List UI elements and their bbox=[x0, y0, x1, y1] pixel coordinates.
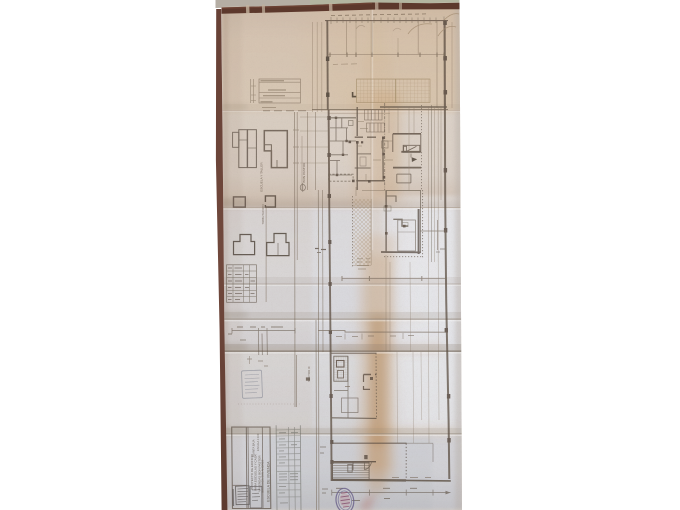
svg-text:BARRIADA SAN ANDRES: BARRIADA SAN ANDRES bbox=[261, 460, 265, 493]
svg-text:ESCUELA DE VIVIENDA: ESCUELA DE VIVIENDA bbox=[266, 461, 270, 502]
svg-text:BON PASTOR: BON PASTOR bbox=[302, 162, 306, 183]
svg-text:PLANTA BAJA: PLANTA BAJA bbox=[251, 439, 255, 457]
svg-text:TRIBUTACION: TRIBUTACION bbox=[261, 204, 265, 224]
svg-text:ESCUELA Y TALLER: ESCUELA Y TALLER bbox=[260, 162, 264, 192]
svg-text:ESCALA 1:100: ESCALA 1:100 bbox=[256, 433, 260, 451]
